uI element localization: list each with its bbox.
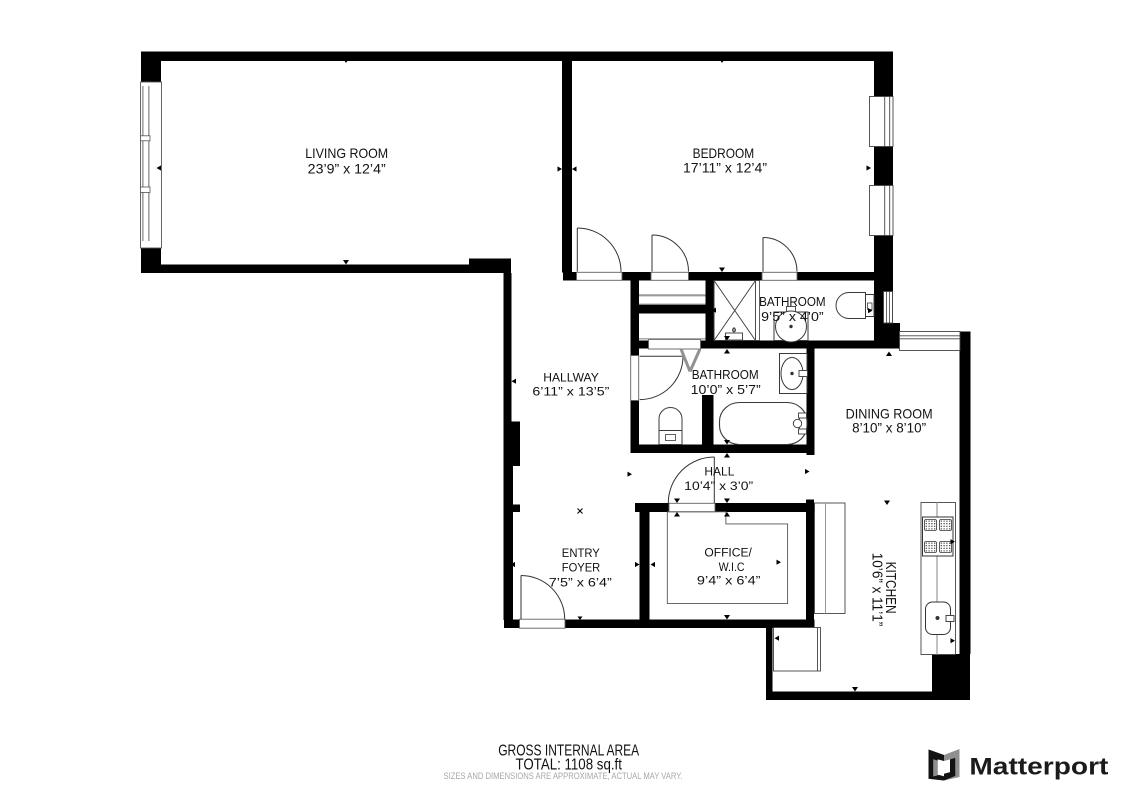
svg-text:HALLWAY: HALLWAY [543,370,599,384]
svg-text:9’4” x 6’4”: 9’4” x 6’4” [697,574,761,588]
svg-text:W.I.C: W.I.C [719,560,745,574]
svg-text:10’6” x 11’1”: 10’6” x 11’1” [868,553,884,627]
svg-text:9’5” x 4’0”: 9’5” x 4’0” [761,310,824,324]
svg-text:10’0” x 5’7”: 10’0” x 5’7” [691,383,761,397]
svg-text:BATHROOM: BATHROOM [692,368,759,382]
svg-text:SIZES AND DIMENSIONS ARE APPRO: SIZES AND DIMENSIONS ARE APPROXIMATE, AC… [444,771,683,781]
svg-text:7’5” x 6’4”: 7’5” x 6’4” [549,576,612,590]
svg-text:10’4” x 3’0”: 10’4” x 3’0” [684,479,753,493]
svg-text:23’9” x 12’4”: 23’9” x 12’4” [308,161,386,177]
svg-text:17’11” x 12’4”: 17’11” x 12’4” [683,160,767,176]
svg-text:8’10” x 8’10”: 8’10” x 8’10” [852,420,926,436]
svg-text:LIVING ROOM: LIVING ROOM [305,145,388,161]
svg-text:ENTRY: ENTRY [562,546,600,560]
svg-text:OFFICE/: OFFICE/ [704,546,752,560]
svg-text:Matterport: Matterport [969,754,1108,781]
svg-text:FOYER: FOYER [562,561,601,575]
svg-text:HALL: HALL [704,465,734,479]
svg-text:6’11” x 13’5”: 6’11” x 13’5” [532,384,609,398]
svg-text:BATHROOM: BATHROOM [759,295,826,309]
